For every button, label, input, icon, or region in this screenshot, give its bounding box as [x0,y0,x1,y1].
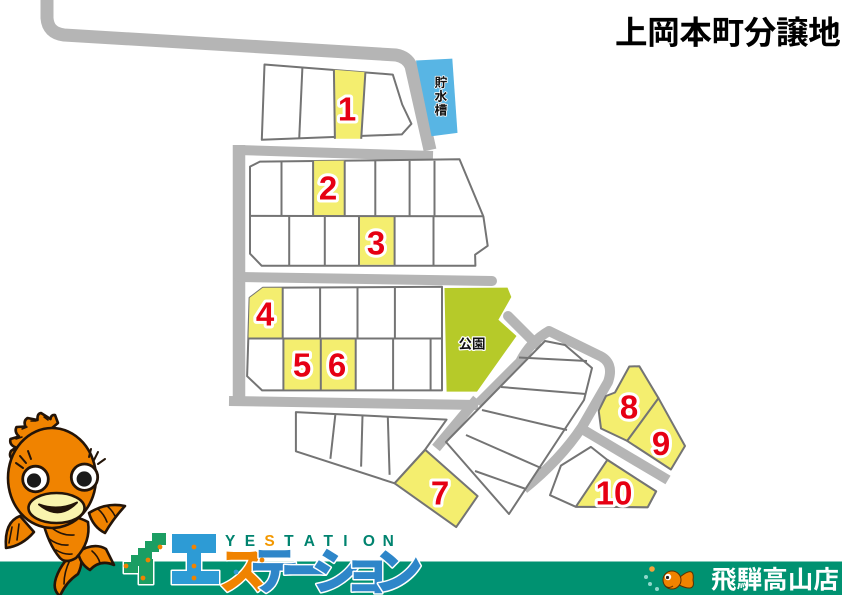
svg-text:E: E [245,533,255,550]
svg-text:O: O [363,533,375,550]
svg-text:Y: Y [225,533,236,550]
svg-text:2: 2 [319,169,337,206]
svg-text:1: 1 [338,90,356,127]
svg-text:T: T [284,533,294,550]
svg-text:T: T [324,533,334,550]
svg-text:A: A [304,533,315,550]
svg-text:6: 6 [328,346,346,383]
svg-text:3: 3 [367,224,385,261]
svg-text:8: 8 [620,388,638,425]
svg-text:9: 9 [652,425,670,462]
svg-text:S: S [264,533,274,550]
svg-text:7: 7 [431,474,449,511]
svg-text:N: N [383,533,394,550]
svg-text:10: 10 [596,474,633,511]
svg-text:4: 4 [256,295,275,332]
svg-text:5: 5 [293,346,311,383]
svg-text:I: I [343,533,347,550]
